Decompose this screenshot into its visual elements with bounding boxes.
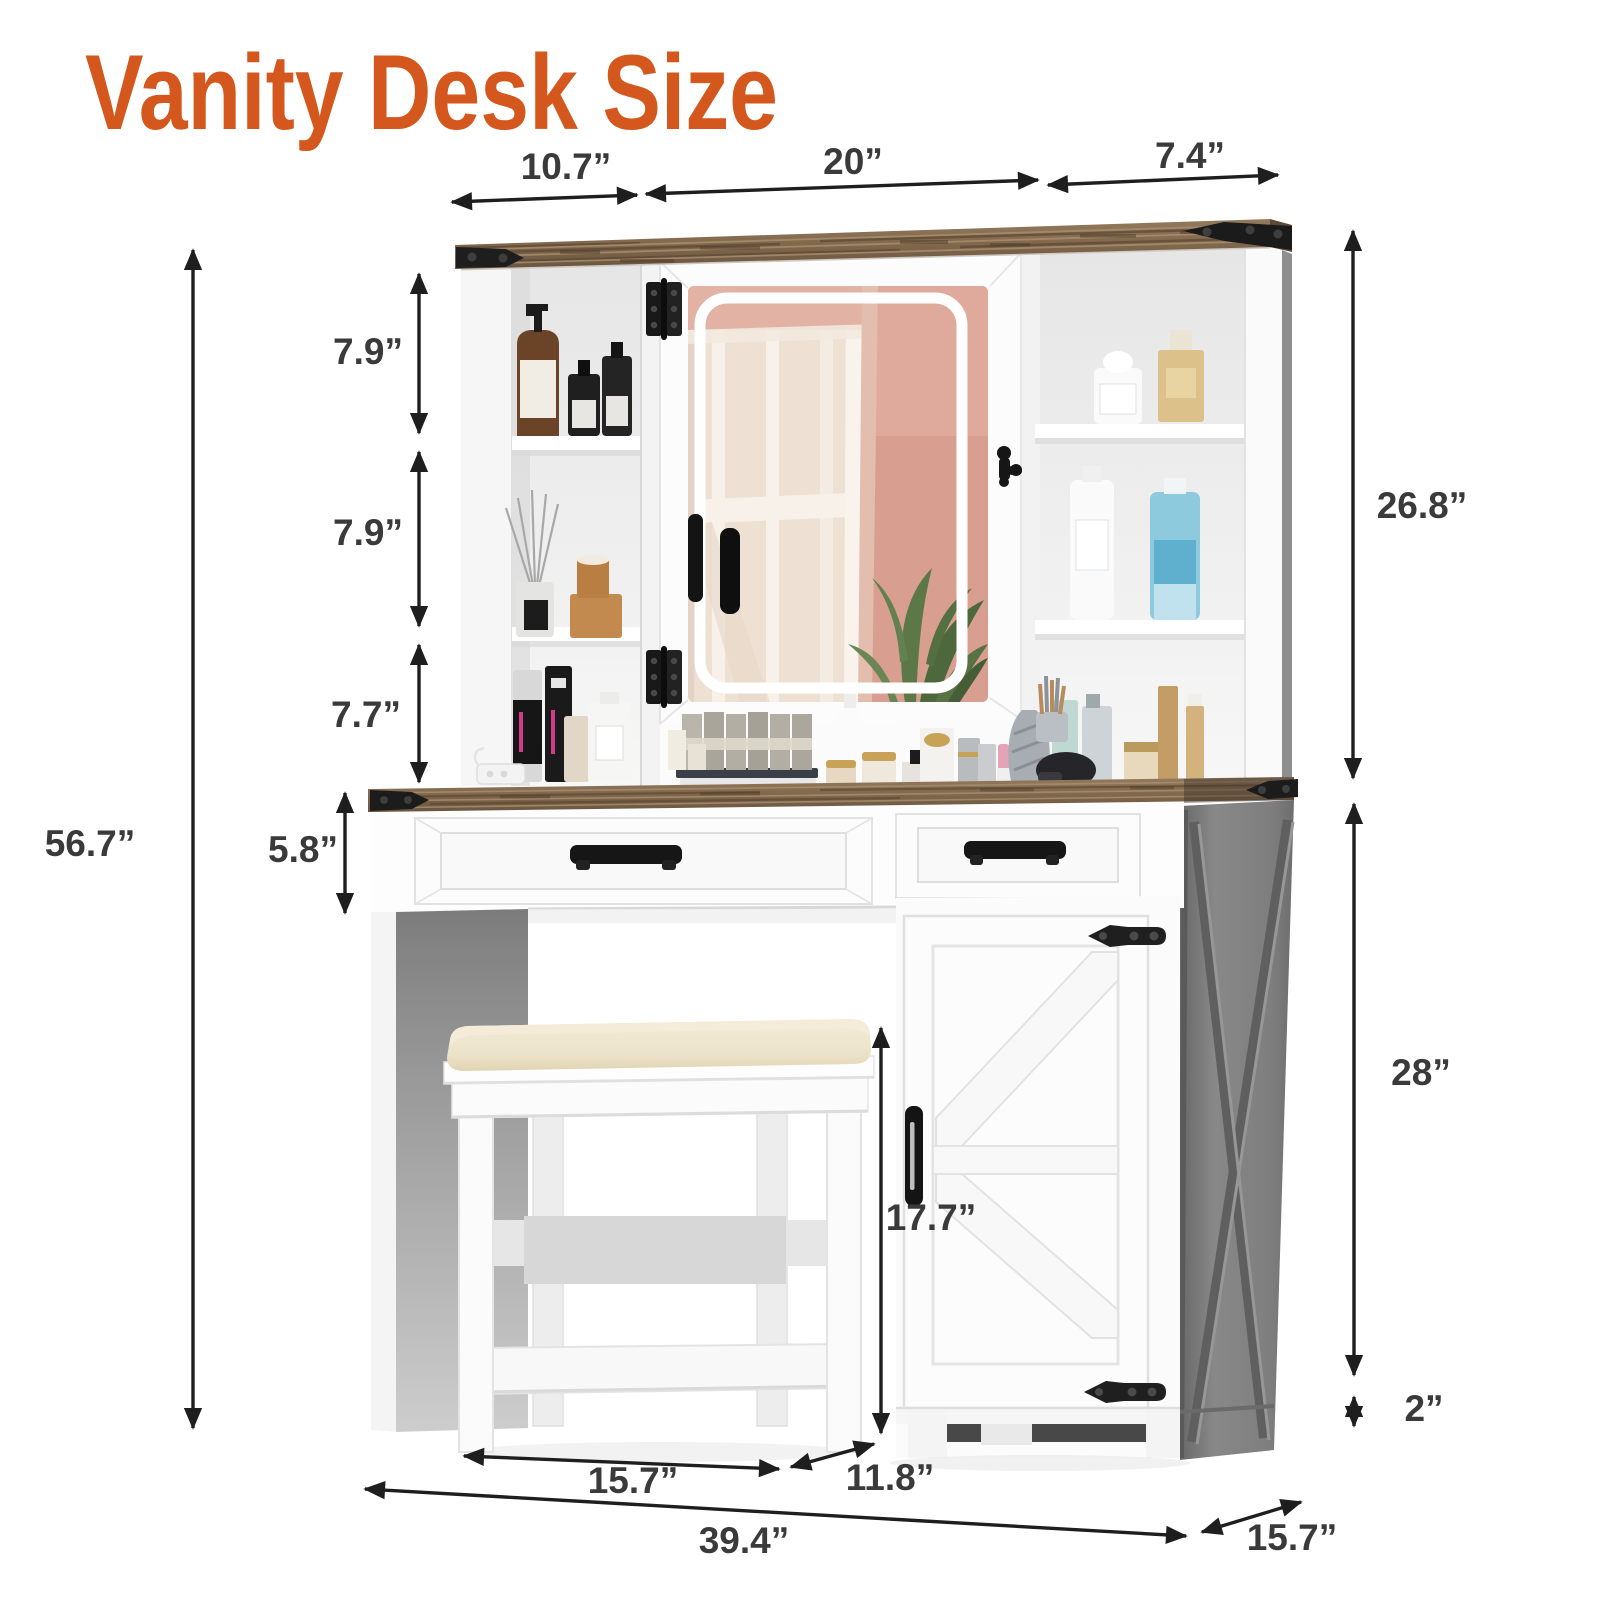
svg-text:39.4”: 39.4” — [699, 1520, 790, 1561]
svg-text:Vanity Desk Size: Vanity Desk Size — [85, 32, 778, 152]
svg-text:2”: 2” — [1404, 1388, 1443, 1429]
svg-text:7.9”: 7.9” — [333, 331, 403, 372]
svg-text:20”: 20” — [823, 141, 883, 182]
svg-text:56.7”: 56.7” — [45, 823, 136, 864]
svg-text:15.7”: 15.7” — [588, 1460, 679, 1501]
svg-text:7.7”: 7.7” — [331, 694, 401, 735]
svg-text:17.7”: 17.7” — [886, 1197, 977, 1238]
svg-text:7.9”: 7.9” — [333, 512, 403, 553]
svg-text:26.8”: 26.8” — [1377, 485, 1468, 526]
svg-text:5.8”: 5.8” — [268, 829, 338, 870]
svg-text:7.4”: 7.4” — [1155, 135, 1225, 176]
svg-text:15.7”: 15.7” — [1247, 1517, 1338, 1558]
svg-text:11.8”: 11.8” — [846, 1457, 934, 1498]
svg-text:10.7”: 10.7” — [521, 146, 612, 187]
svg-text:28”: 28” — [1391, 1052, 1451, 1093]
